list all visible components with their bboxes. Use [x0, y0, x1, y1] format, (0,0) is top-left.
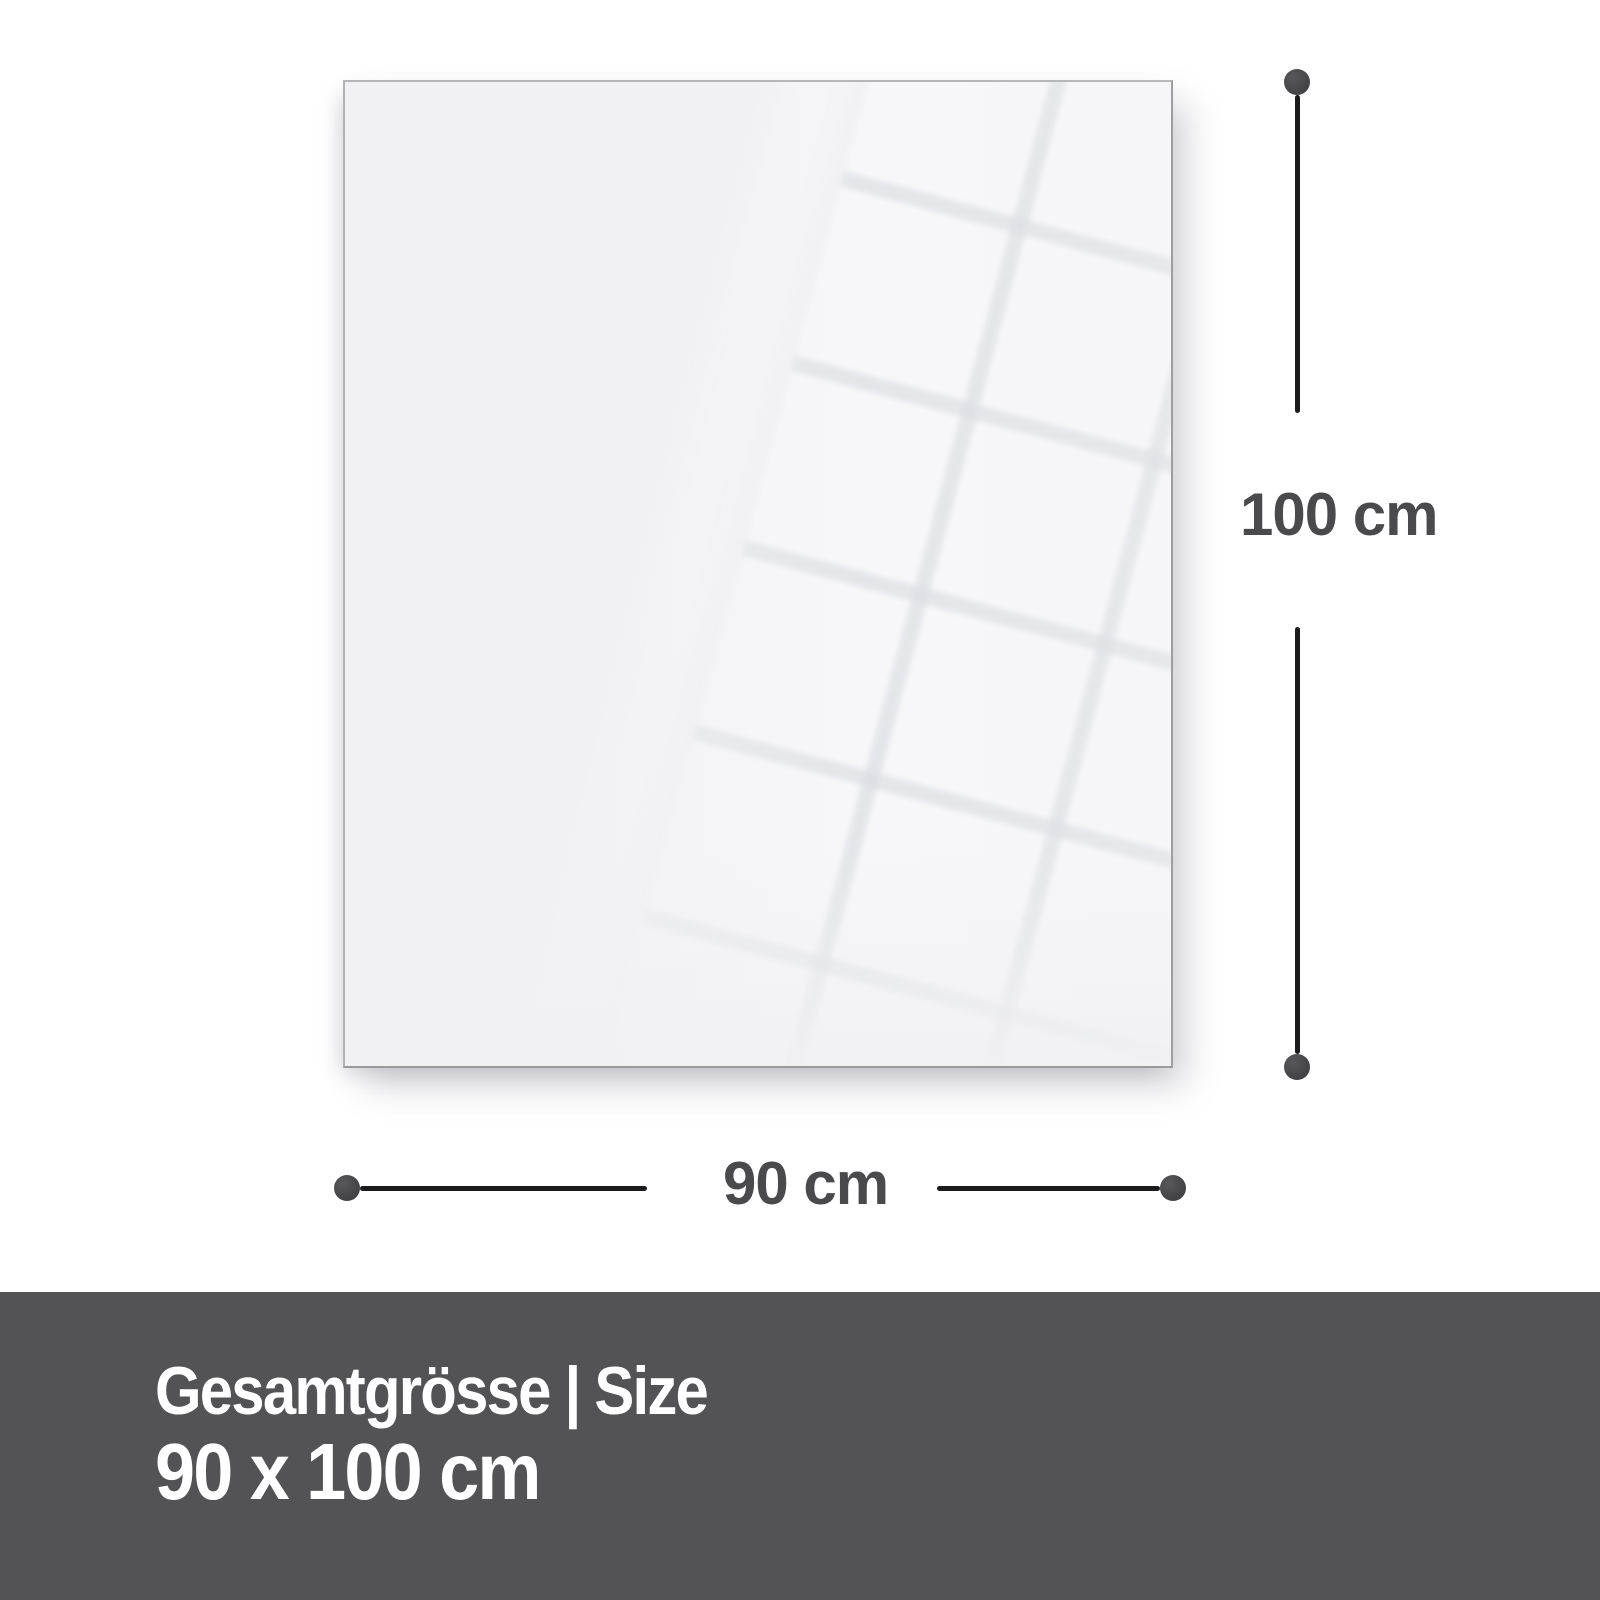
dimension-line-segment: [360, 1186, 647, 1191]
dimension-line-segment: [937, 1186, 1160, 1191]
dimension-endpoint-dot-top: [1284, 69, 1310, 95]
dimension-endpoint-dot-right: [1160, 1175, 1186, 1201]
height-value-label: 100 cm: [1240, 485, 1438, 545]
dimension-line-segment: [1295, 627, 1300, 1054]
width-value-label: 90 cm: [723, 1154, 888, 1214]
dimension-endpoint-dot-left: [334, 1175, 360, 1201]
dimension-line-segment: [1295, 95, 1300, 413]
glass-reflection: [345, 82, 1171, 1066]
footer-title: Gesamtgrösse | Size: [155, 1354, 1427, 1428]
footer-size-value: 90 x 100 cm: [155, 1431, 1456, 1513]
reflection-fade-overlay: [345, 82, 1171, 1066]
size-footer: Gesamtgrösse | Size 90 x 100 cm: [0, 1292, 1600, 1600]
product-panel: [343, 80, 1173, 1068]
dimension-endpoint-dot-bottom: [1284, 1054, 1310, 1080]
size-diagram: 100 cm 90 cm Gesamtgrösse | Size 90 x 10…: [0, 0, 1600, 1600]
